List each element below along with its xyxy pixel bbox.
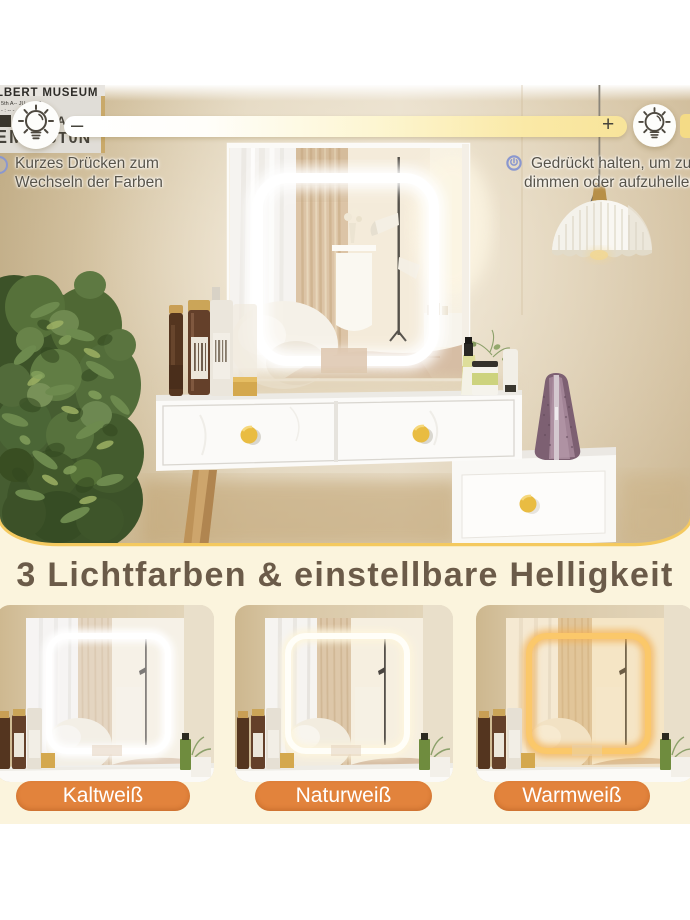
- svg-text:LBERT MUSEUM: LBERT MUSEUM: [0, 87, 98, 99]
